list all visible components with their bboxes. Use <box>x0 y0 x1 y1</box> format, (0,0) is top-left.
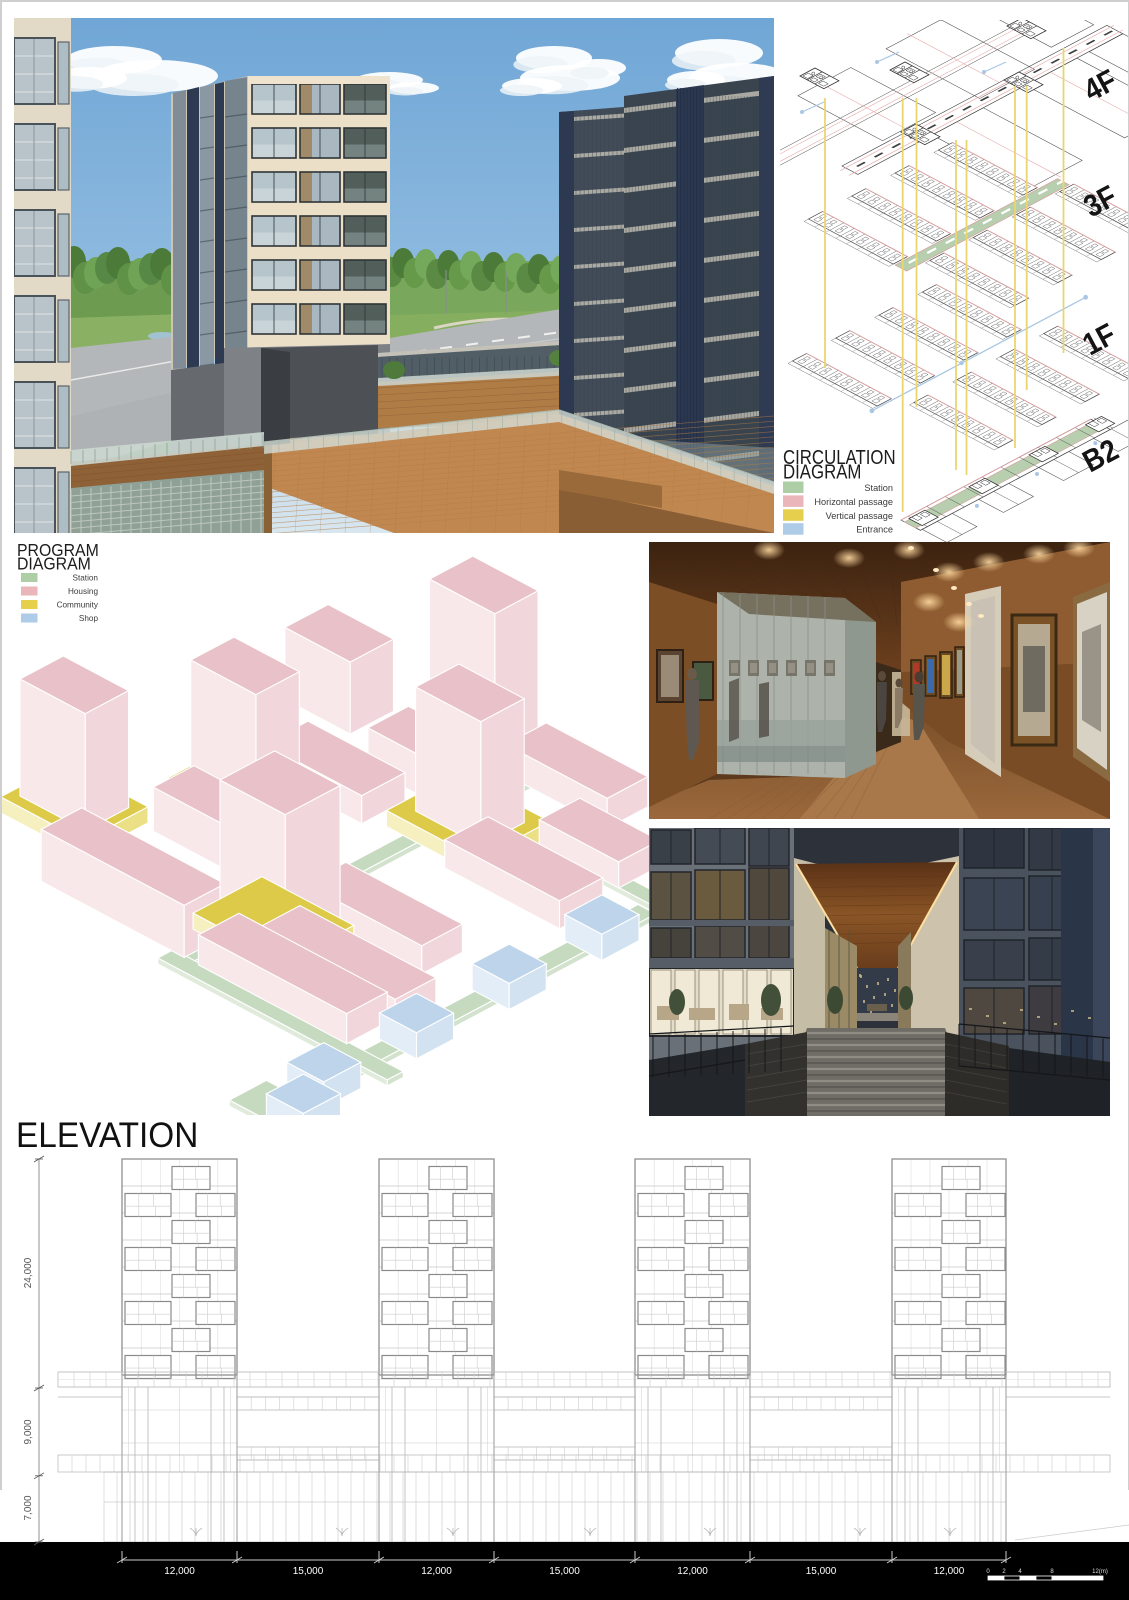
svg-text:12,000: 12,000 <box>677 1566 708 1577</box>
svg-text:4F: 4F <box>1079 64 1123 109</box>
svg-text:9,000: 9,000 <box>23 1419 34 1444</box>
svg-text:15,000: 15,000 <box>549 1566 580 1577</box>
svg-text:3F: 3F <box>1079 180 1123 225</box>
svg-text:12,000: 12,000 <box>934 1566 965 1577</box>
svg-text:12(m): 12(m) <box>1092 1569 1108 1575</box>
svg-text:15,000: 15,000 <box>806 1566 837 1577</box>
svg-text:12,000: 12,000 <box>421 1566 452 1577</box>
svg-text:12,000: 12,000 <box>164 1566 195 1577</box>
svg-text:B2: B2 <box>1078 433 1125 479</box>
svg-text:1F: 1F <box>1078 318 1122 363</box>
svg-text:24,000: 24,000 <box>23 1257 34 1288</box>
svg-text:15,000: 15,000 <box>293 1566 324 1577</box>
svg-text:7,000: 7,000 <box>23 1495 34 1520</box>
